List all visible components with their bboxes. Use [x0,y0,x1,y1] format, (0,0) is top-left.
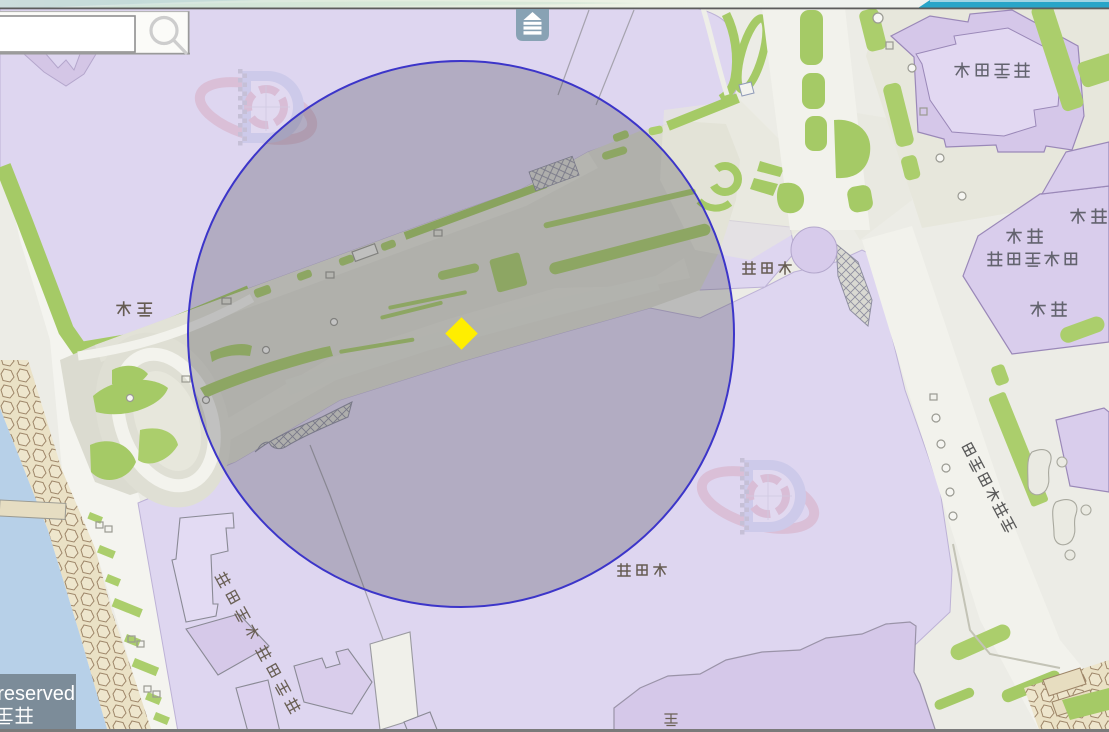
svg-text:reserved: reserved [0,683,75,705]
